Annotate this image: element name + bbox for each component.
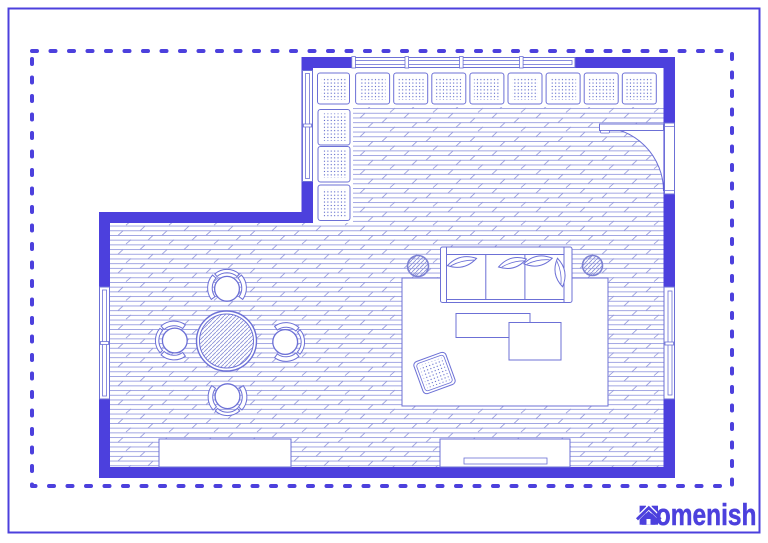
svg-text:omenish: omenish	[656, 497, 757, 531]
